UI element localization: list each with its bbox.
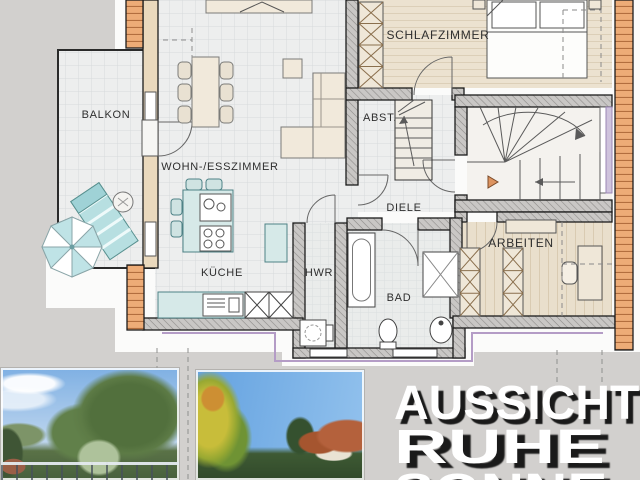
photo-garden-right — [196, 370, 364, 480]
nightstand — [473, 0, 485, 9]
bed — [487, 0, 587, 78]
toilet — [379, 319, 397, 343]
nightstand — [589, 0, 601, 9]
room-label-arbeiten: ARBEITEN — [488, 236, 554, 250]
stool — [206, 179, 222, 190]
room-label-kueche: KÜCHE — [201, 267, 243, 279]
headline: AUSSICHT RUHE SONNE — [394, 382, 640, 480]
window — [145, 92, 156, 122]
page: BALKON WOHN-/ESSZIMMER KÜCHE HWR BAD DIE… — [0, 0, 640, 480]
cooktop — [200, 226, 231, 251]
dining-table — [192, 57, 219, 127]
parasol — [42, 217, 102, 277]
room-label-hwr: HWR — [305, 267, 333, 279]
desk — [578, 246, 602, 300]
stool — [171, 199, 182, 215]
office-sideboard — [506, 220, 556, 233]
balcony-door-frame — [142, 120, 158, 156]
window — [393, 349, 437, 357]
photo-garden-left — [1, 368, 179, 480]
side-table — [283, 59, 302, 78]
headline-line-3: SONNE — [394, 470, 640, 480]
room-label-bad: BAD — [387, 292, 412, 304]
room-label-balkon: BALKON — [82, 109, 131, 121]
stair-window-lilac — [606, 107, 612, 193]
sideboard — [206, 0, 312, 13]
room-label-abst: ABST. — [363, 112, 397, 124]
room-label-schlafzimmer: SCHLAFZIMMER — [386, 28, 489, 42]
window — [310, 349, 347, 357]
room-label-diele: DIELE — [386, 202, 421, 214]
desk-chair — [562, 262, 577, 284]
kitchen-sink — [200, 194, 231, 221]
counter-sink — [203, 294, 243, 316]
stool — [186, 179, 202, 190]
stool — [171, 221, 182, 237]
headline-line-1: AUSSICHT — [394, 382, 640, 426]
stair-window — [600, 107, 606, 193]
room-label-wohnzimmer: WOHN-/ESSZIMMER — [161, 161, 278, 173]
window — [145, 222, 156, 256]
headline-line-2: RUHE — [394, 426, 640, 470]
kitchen-cabinet — [265, 224, 287, 262]
